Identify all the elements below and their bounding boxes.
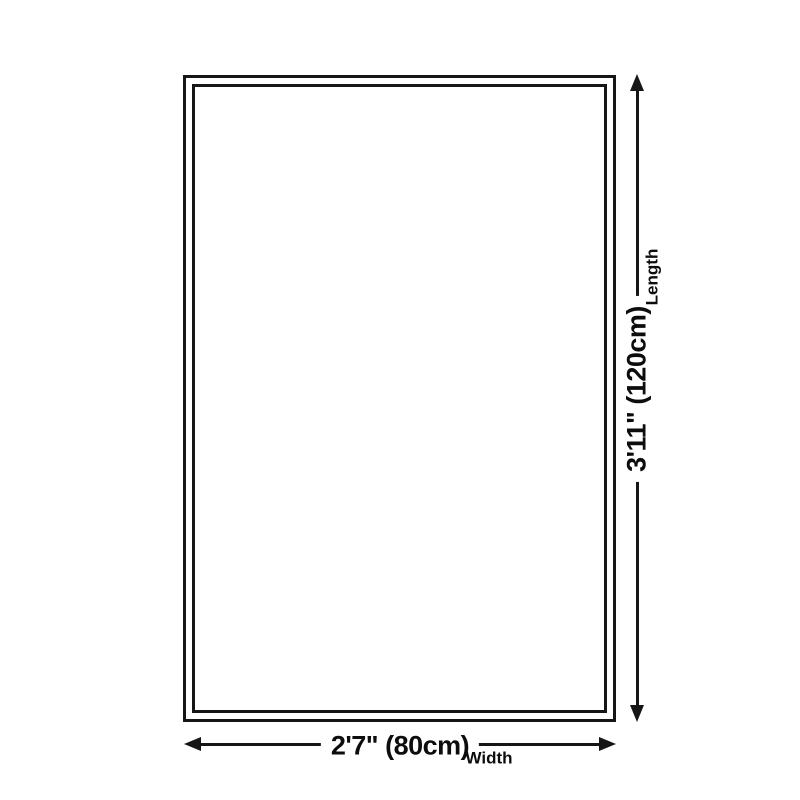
width-value-label: 2'7" (80cm): [321, 731, 479, 762]
arrow-left-icon: [184, 737, 201, 751]
length-value-label: 3'11" (120cm): [622, 296, 653, 482]
arrow-down-icon: [630, 705, 644, 722]
product-outline-inner-border: [192, 84, 607, 713]
width-name-label: Width: [465, 750, 512, 767]
arrow-up-icon: [630, 74, 644, 91]
arrow-right-icon: [599, 737, 616, 751]
product-outline: [183, 75, 616, 722]
length-name-label: Length: [644, 249, 661, 306]
size-diagram: 3'11" (120cm) Length 2'7" (80cm) Width: [0, 0, 800, 800]
